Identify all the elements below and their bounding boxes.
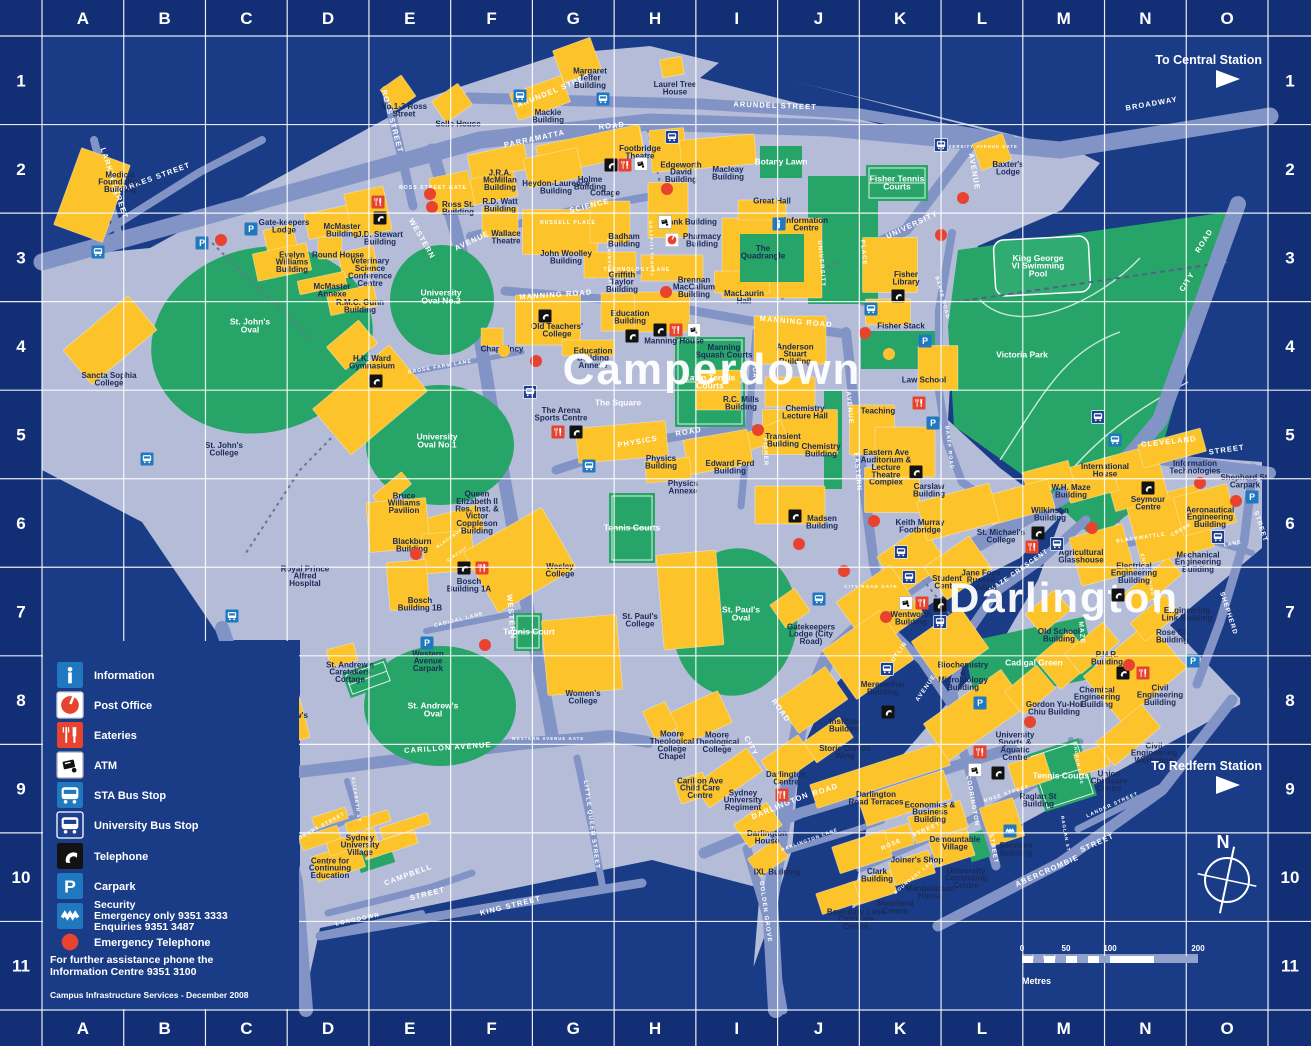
building-label: PhysicsAnnexe <box>668 479 699 495</box>
map-yellow-dot <box>490 329 502 341</box>
map-text: 4 <box>16 337 26 356</box>
building-label: Cottage <box>590 189 620 198</box>
street-label: WESTERN AVENUE GATE <box>512 736 584 741</box>
univ-icon <box>666 131 679 144</box>
building-label: SydneyUniversityRegiment <box>724 788 763 812</box>
map-text: L <box>977 9 987 28</box>
park-icon: P <box>245 223 258 236</box>
building-label: CarslawBuilding <box>913 482 945 498</box>
map-text: G <box>567 1019 580 1038</box>
green-label: Cadigal Green <box>1005 658 1063 668</box>
map-text: 3 <box>1285 248 1294 267</box>
atm-icon <box>635 158 648 171</box>
post-icon <box>57 692 83 718</box>
univ-icon <box>57 812 83 838</box>
map-text: 3 <box>16 248 25 267</box>
info-icon <box>773 218 786 231</box>
building-label: Centre forContinuingEducation <box>309 856 351 880</box>
map-text: H <box>649 9 661 28</box>
emergency-telephone-dot <box>530 355 542 367</box>
map-text: 8 <box>16 691 25 710</box>
univ-icon <box>934 616 947 629</box>
tel-icon <box>1032 527 1045 540</box>
map-text: B <box>158 1019 170 1038</box>
atm-icon <box>659 216 672 229</box>
building-label: R.D. WattBuilding <box>482 197 518 213</box>
sta-icon <box>92 246 105 259</box>
sta-icon <box>141 453 154 466</box>
tel-icon <box>992 767 1005 780</box>
map-text: J <box>814 1019 823 1038</box>
building-label: Women'sCollege <box>565 689 601 705</box>
map-text: 2 <box>16 160 25 179</box>
map-text: B <box>158 9 170 28</box>
park-icon: P <box>927 417 940 430</box>
eat-icon <box>670 324 683 337</box>
map-text: P <box>1190 656 1196 666</box>
map-text: E <box>404 9 415 28</box>
map-text: O <box>1221 9 1234 28</box>
eat-icon <box>372 196 385 209</box>
sta-icon <box>226 610 239 623</box>
building-label: EducationBuilding <box>611 309 650 325</box>
green-label: Tennis Court <box>503 627 555 637</box>
emergency-telephone-dot <box>426 201 438 213</box>
atm-icon <box>57 752 83 778</box>
building-label: BadhamBuilding <box>608 232 640 248</box>
map-text: 11 <box>1281 957 1299 976</box>
sta-icon <box>583 460 596 473</box>
emergency-telephone-dot <box>660 286 672 298</box>
building-label: St. John'sCollege <box>205 441 243 457</box>
eat-icon <box>913 397 926 410</box>
univ-icon <box>1212 531 1225 544</box>
tel-icon <box>882 706 895 719</box>
map-text: Metres <box>1022 976 1051 986</box>
map-text: Enquiries 9351 3487 <box>94 921 195 933</box>
building-label: WesleyCollege <box>546 562 575 578</box>
building-label: WesternAvenueCarpark <box>412 649 444 673</box>
building-label: MerewetherBuilding <box>861 680 905 696</box>
map-text: 10 <box>12 868 31 887</box>
map-text: P <box>64 876 76 896</box>
sta-icon <box>865 303 878 316</box>
park-icon: P <box>57 873 83 899</box>
map-text: Information Centre 9351 3100 <box>50 966 197 978</box>
map-text: J <box>814 9 823 28</box>
green-label: Botany Lawn <box>755 157 808 167</box>
building-label: AgriculturalGlasshouse <box>1058 548 1104 564</box>
map-yellow-dot <box>498 345 510 357</box>
building-label: McMasterBuilding <box>324 222 361 238</box>
building-label: Gordon Yu-HoiChiu Building <box>1026 700 1082 716</box>
univ-icon <box>881 663 894 676</box>
dot-icon <box>62 934 79 951</box>
emergency-telephone-dot <box>859 327 871 339</box>
building-label: McMasterAnnexe <box>314 282 351 298</box>
building <box>523 210 598 255</box>
map-text: N <box>1217 832 1230 852</box>
building-label: Law School <box>902 376 946 385</box>
emergency-telephone-dot <box>215 234 227 246</box>
street-label: CITY ROAD GATE <box>844 584 898 589</box>
map-text: F <box>486 9 496 28</box>
tel-icon <box>1112 589 1125 602</box>
eat-icon <box>1137 667 1150 680</box>
green-label: UniversityOval No.1 <box>416 432 457 450</box>
sta-icon <box>1109 434 1122 447</box>
map-text: To Central Station <box>1155 53 1262 67</box>
map-text: 50 <box>1062 944 1071 953</box>
emergency-telephone-dot <box>1086 522 1098 534</box>
map-text: K <box>894 9 907 28</box>
building-label: SeymourCentre <box>1131 495 1165 511</box>
map-text: 7 <box>1285 603 1294 622</box>
building-label: St. Paul'sCollege <box>622 612 658 628</box>
atm-icon <box>900 597 913 610</box>
tel-icon <box>910 466 923 479</box>
building-label: WentworthBuilding <box>890 610 931 626</box>
emergency-telephone-dot <box>1024 716 1036 728</box>
eat-icon <box>552 426 565 439</box>
building-label: MadsenBuilding <box>806 514 838 530</box>
tel-icon <box>458 562 471 575</box>
map-text: D <box>322 1019 334 1038</box>
building-label: PhysicsBuilding <box>645 454 677 470</box>
tel-icon <box>654 324 667 337</box>
map-text: M <box>1057 1019 1071 1038</box>
building-label: Keith MurrayFootbridge <box>896 518 945 534</box>
map-text: A <box>77 1019 89 1038</box>
map-text: P <box>930 418 936 428</box>
map-canvas: SPARKES STREETLARKIN STREETPARRAMATTAROA… <box>0 0 1311 1046</box>
building-label: QueenElizabeth IIRes. Inst. &VictorCoppl… <box>455 490 499 536</box>
park-icon: P <box>421 637 434 650</box>
map-text: 6 <box>1285 514 1294 533</box>
building-label: EvelynWilliamsBuilding <box>276 250 309 274</box>
map-text: Emergency Telephone <box>94 937 211 949</box>
map-text: P <box>1249 492 1255 502</box>
tel-icon <box>605 159 618 172</box>
map-text: P <box>922 336 928 346</box>
emergency-telephone-dot <box>661 183 673 195</box>
building-label: Fisher Stack <box>877 322 925 331</box>
map-text: G <box>567 9 580 28</box>
map-text: Eateries <box>94 730 137 742</box>
map-text: 1 <box>16 71 25 90</box>
emergency-telephone-dot <box>957 192 969 204</box>
building-label: WallaceTheatre <box>491 229 521 245</box>
emergency-telephone-dot <box>880 611 892 623</box>
building-label: GriffithTaylorBuilding <box>606 270 638 294</box>
building-label: ChemistryBuilding <box>801 442 841 458</box>
tel-icon <box>57 843 83 869</box>
building-label: Teaching <box>861 407 896 416</box>
map-text: M <box>1057 9 1071 28</box>
tel-icon <box>789 510 802 523</box>
map-text: For further assistance phone the <box>50 954 214 966</box>
building-label: H.K. WardGymnasium <box>349 354 395 370</box>
building-label: BrennanMacCallumBuilding <box>673 275 715 299</box>
tel-icon <box>892 290 905 303</box>
building-label: Great Hall <box>753 197 791 206</box>
sec-icon <box>57 903 83 929</box>
map-text: 5 <box>16 425 25 444</box>
map-text: C <box>240 1019 252 1038</box>
emergency-telephone-dot <box>752 424 764 436</box>
sta-icon <box>514 90 527 103</box>
building-label: The ArenaSports Centre <box>535 406 588 422</box>
map-text: 100 <box>1103 944 1117 953</box>
building-label: TransientBuilding <box>765 432 801 448</box>
tel-icon <box>1142 482 1155 495</box>
green-label: UniversityOval No.2 <box>420 288 461 306</box>
map-text: E <box>404 1019 415 1038</box>
map-text: N <box>1139 9 1151 28</box>
tel-icon <box>539 310 552 323</box>
map-text: P <box>248 224 254 234</box>
emergency-telephone-dot <box>793 538 805 550</box>
building-label: Old SchoolBuilding <box>1038 627 1080 643</box>
map-text: 6 <box>16 514 25 533</box>
eat-icon <box>619 159 632 172</box>
univ-icon <box>1092 411 1105 424</box>
building-label: MackieBuilding <box>532 108 564 124</box>
tel-icon <box>370 375 383 388</box>
map-text: Carpark <box>94 881 136 893</box>
map-text: 7 <box>16 603 25 622</box>
building-label: MacleayBuilding <box>712 165 744 181</box>
emergency-telephone-dot <box>1230 495 1242 507</box>
map-text: 1 <box>1285 71 1294 90</box>
univ-icon <box>903 571 916 584</box>
map-text: 4 <box>1285 337 1295 356</box>
map-text: O <box>1221 1019 1234 1038</box>
map-text: C <box>240 9 252 28</box>
map-text: 5 <box>1285 425 1294 444</box>
map-text: 11 <box>12 957 30 976</box>
building-label: ChemistryLecture Hall <box>782 404 828 420</box>
map-text: I <box>734 1019 739 1038</box>
atm-icon <box>969 764 982 777</box>
map-text: Information <box>94 670 155 682</box>
sta-icon <box>597 93 610 106</box>
tel-icon <box>570 426 583 439</box>
building-label: Rose St.Building <box>1156 628 1188 644</box>
building-label: PharmacyBuilding <box>683 232 722 248</box>
map-text: N <box>1139 1019 1151 1038</box>
street-label: UNIVERSITY AVENUE GATE <box>938 144 1018 149</box>
sec-icon <box>1004 825 1017 838</box>
map-text: Post Office <box>94 700 152 712</box>
map-text: I <box>734 9 739 28</box>
map-text: Campus Infrastructure Services - Decembe… <box>50 990 249 1000</box>
tel-icon <box>626 330 639 343</box>
eat-icon <box>974 746 987 759</box>
map-text: P <box>199 238 205 248</box>
eat-icon <box>57 722 83 748</box>
green-label: Tennis Courts <box>1033 771 1090 781</box>
park-icon: P <box>1246 491 1259 504</box>
map-text: A <box>77 9 89 28</box>
map-text: STA Bus Stop <box>94 790 166 802</box>
building-label: DarlingtonRoad Terraces <box>849 790 905 806</box>
building-label: Raglan StBuilding <box>1020 792 1057 808</box>
campus-map: SPARKES STREETLARKIN STREETPARRAMATTAROA… <box>0 0 1311 1046</box>
map-text: 0 <box>1020 944 1025 953</box>
sta-icon <box>813 593 826 606</box>
building-label: InstituteBuilding <box>829 717 861 733</box>
map-text: University Bus Stop <box>94 820 199 832</box>
eat-icon <box>916 597 929 610</box>
building <box>660 56 685 78</box>
sta-icon <box>57 782 83 808</box>
map-text: 2 <box>1285 160 1294 179</box>
emergency-telephone-dot <box>1123 659 1135 671</box>
map-text: 8 <box>1285 691 1294 710</box>
emergency-telephone-dot <box>868 515 880 527</box>
map-text: 9 <box>16 780 25 799</box>
building-label: ServicesBuilding <box>1000 841 1033 857</box>
map-text: Telephone <box>94 851 148 863</box>
building-label: FisherLibrary <box>892 270 920 286</box>
building-label: WilkinsonBuilding <box>1031 506 1069 522</box>
info-icon <box>57 662 83 688</box>
univ-icon <box>524 386 537 399</box>
green-label: Victoria Park <box>996 350 1048 360</box>
map-text: To Redfern Station <box>1151 759 1262 773</box>
green-label: Tennis Courts <box>604 523 661 533</box>
park-icon: P <box>196 237 209 250</box>
univ-icon <box>1051 538 1064 551</box>
tel-icon <box>934 599 947 612</box>
map-text: 9 <box>1285 780 1294 799</box>
building-label: Joiner's Shop <box>891 856 944 865</box>
building-label: W.H. MazeBuilding <box>1051 483 1091 499</box>
emergency-telephone-dot <box>410 548 422 560</box>
building-label: R.C. MillsBuilding <box>723 395 760 411</box>
map-text: D <box>322 9 334 28</box>
green-label: The Square <box>595 398 642 408</box>
map-text: Camperdown <box>563 345 862 394</box>
map-text: Darlington <box>949 574 1179 621</box>
building-label: Ross St.Building <box>442 200 474 216</box>
map-text: P <box>977 698 983 708</box>
univ-icon <box>895 546 908 559</box>
legend: InformationPost OfficeEateriesATMSTA Bus… <box>43 641 299 1009</box>
building <box>656 550 724 650</box>
eat-icon <box>1026 541 1039 554</box>
eat-icon <box>476 562 489 575</box>
park-icon: P <box>919 335 932 348</box>
map-text: K <box>894 1019 907 1038</box>
map-text: H <box>649 1019 661 1038</box>
map-text: P <box>424 638 430 648</box>
map-yellow-dot <box>883 348 895 360</box>
map-text: 200 <box>1191 944 1205 953</box>
map-text: F <box>486 1019 496 1038</box>
map-text: L <box>977 1019 987 1038</box>
post-icon <box>666 234 679 247</box>
emergency-telephone-dot <box>479 639 491 651</box>
map-text: 10 <box>1281 868 1300 887</box>
atm-icon <box>688 324 701 337</box>
building-label: InformationTechnologies <box>1170 459 1222 475</box>
park-icon: P <box>974 697 987 710</box>
street-label: RUSSELL PLACE <box>540 220 596 226</box>
park-icon: P <box>1187 655 1200 668</box>
emergency-telephone-dot <box>424 188 436 200</box>
building-label: Baxter'sLodge <box>992 160 1024 176</box>
map-text: ATM <box>94 760 117 772</box>
